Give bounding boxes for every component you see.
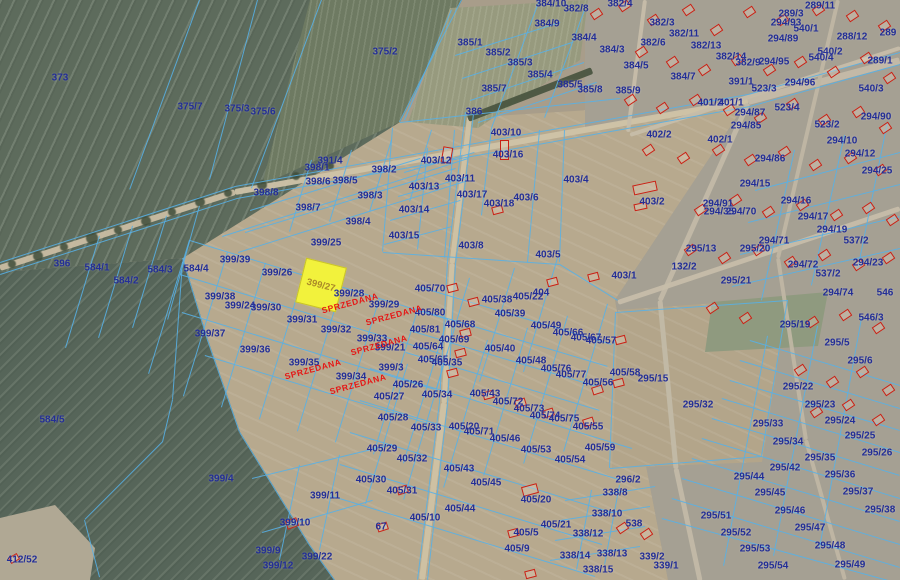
sold-stamp: SPRZEDANA <box>365 303 424 328</box>
sold-stamp: SPRZEDANA <box>284 357 343 382</box>
cadastral-map-canvas[interactable]: 399/27 373375/7375/3375/6375/2396584/158… <box>0 0 900 580</box>
sold-stamp: SPRZEDANA <box>329 372 388 397</box>
sold-stamp: SPRZEDANA <box>321 291 380 316</box>
sold-stamp: SPRZEDANA <box>350 333 409 358</box>
sold-stamps-layer: SPRZEDANASPRZEDANASPRZEDANASPRZEDANASPRZ… <box>0 0 900 580</box>
